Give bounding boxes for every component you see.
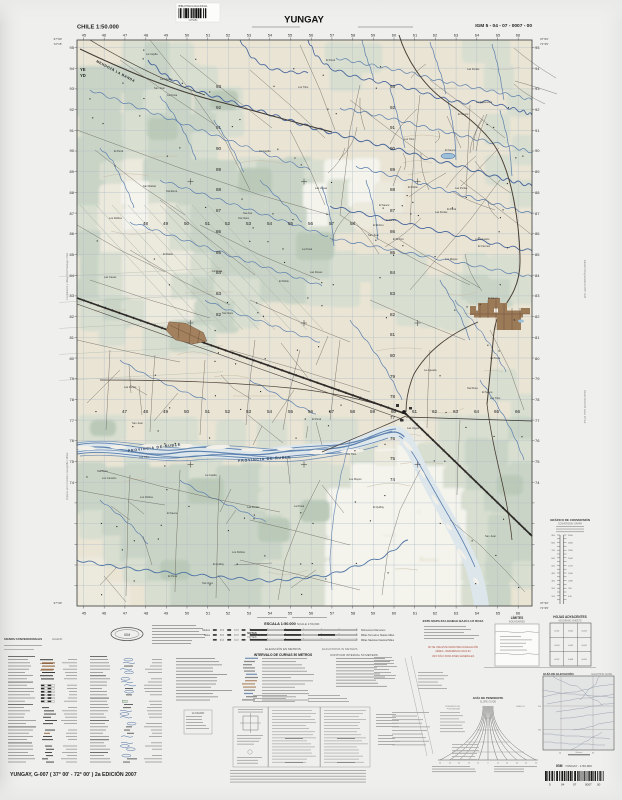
svg-text:La Posta: La Posta bbox=[212, 269, 223, 273]
svg-text:80: 80 bbox=[70, 356, 75, 361]
svg-text:YUNGAY: YUNGAY bbox=[284, 15, 324, 26]
svg-text:92: 92 bbox=[70, 107, 75, 112]
svg-text:83: 83 bbox=[535, 293, 540, 298]
svg-text:52: 52 bbox=[226, 611, 231, 616]
svg-text:52: 52 bbox=[225, 221, 231, 226]
svg-text:90: 90 bbox=[216, 146, 222, 151]
svg-text:IGM: IGM bbox=[556, 764, 563, 768]
svg-text:Los Tilos: Los Tilos bbox=[490, 396, 501, 400]
svg-text:IGM 5 - 04 - 07 - 0007 - 00: IGM 5 - 04 - 07 - 0007 - 00 bbox=[475, 23, 532, 29]
svg-text:57: 57 bbox=[330, 33, 335, 38]
svg-text:CONVERSION GRAPH: CONVERSION GRAPH bbox=[558, 523, 583, 526]
svg-text:83: 83 bbox=[390, 291, 396, 296]
svg-text:La Capilla: La Capilla bbox=[205, 473, 217, 477]
svg-text:GRADOS: GRADOS bbox=[516, 705, 525, 708]
svg-text:IGM: IGM bbox=[124, 633, 131, 637]
svg-text:58: 58 bbox=[350, 221, 356, 226]
svg-text:85: 85 bbox=[390, 250, 396, 255]
svg-text:Los Robles: Los Robles bbox=[109, 216, 123, 220]
svg-text:94: 94 bbox=[535, 66, 540, 71]
svg-text:51: 51 bbox=[206, 33, 211, 38]
svg-text:La Posta: La Posta bbox=[490, 356, 501, 360]
svg-text:40: 40 bbox=[449, 763, 451, 765]
svg-text:86: 86 bbox=[216, 229, 222, 234]
svg-text:78: 78 bbox=[390, 394, 396, 399]
svg-text:54: 54 bbox=[268, 611, 273, 616]
svg-text:92: 92 bbox=[535, 107, 540, 112]
svg-text:El Sauce: El Sauce bbox=[445, 148, 456, 152]
svg-text:Metros: Metros bbox=[202, 629, 210, 632]
svg-text:50: 50 bbox=[185, 611, 190, 616]
svg-text:53: 53 bbox=[247, 611, 252, 616]
svg-text:62: 62 bbox=[432, 409, 438, 414]
svg-text:86: 86 bbox=[70, 231, 75, 236]
svg-text:59: 59 bbox=[371, 33, 376, 38]
svg-text:82: 82 bbox=[390, 312, 396, 317]
svg-text:La Esperanza: La Esperanza bbox=[476, 100, 493, 104]
svg-text:50: 50 bbox=[185, 33, 190, 38]
svg-text:59: 59 bbox=[370, 409, 376, 414]
svg-text:LEGEND: LEGEND bbox=[52, 638, 62, 641]
svg-text:79: 79 bbox=[535, 376, 540, 381]
svg-text:62: 62 bbox=[433, 33, 438, 38]
svg-text:76: 76 bbox=[535, 438, 540, 443]
svg-text:G-009: G-009 bbox=[582, 659, 587, 661]
svg-text:ELEVATIONS IN METERS: ELEVATIONS IN METERS bbox=[322, 647, 358, 651]
svg-text:GLOSARIO: GLOSARIO bbox=[192, 712, 205, 715]
svg-text:63: 63 bbox=[454, 611, 459, 616]
svg-text:Los Mayos: Los Mayos bbox=[349, 477, 362, 481]
svg-text:81: 81 bbox=[535, 335, 540, 340]
svg-text:San Juan: San Juan bbox=[154, 86, 166, 90]
svg-text:79: 79 bbox=[390, 374, 396, 379]
svg-text:74: 74 bbox=[535, 480, 540, 485]
svg-text:55: 55 bbox=[288, 221, 294, 226]
svg-text:Los Robles: Los Robles bbox=[140, 495, 154, 499]
svg-text:Las Perlas: Las Perlas bbox=[124, 385, 137, 389]
svg-text:Metros: Metros bbox=[576, 751, 584, 754]
svg-text:45: 45 bbox=[82, 611, 87, 616]
svg-text:El Carmen: El Carmen bbox=[478, 244, 491, 248]
svg-text:NO SE USE ESTE MAPA PARA NAVEG: NO SE USE ESTE MAPA PARA NAVEGACIÓN bbox=[428, 646, 479, 649]
svg-text:49: 49 bbox=[163, 409, 169, 414]
svg-text:76: 76 bbox=[70, 438, 75, 443]
svg-text:93: 93 bbox=[216, 84, 222, 89]
svg-text:86: 86 bbox=[390, 229, 396, 234]
svg-text:GUÍA DE ELEVACIÓN: GUÍA DE ELEVACIÓN bbox=[543, 671, 574, 676]
svg-text:89: 89 bbox=[70, 169, 75, 174]
svg-text:37°00': 37°00' bbox=[540, 37, 549, 41]
svg-text:ELEVACIÓN EN METROS: ELEVACIÓN EN METROS bbox=[265, 646, 301, 651]
svg-text:G-005: G-005 bbox=[568, 645, 573, 647]
svg-text:93: 93 bbox=[390, 84, 396, 89]
svg-text:YD: YD bbox=[80, 73, 86, 78]
svg-text:83: 83 bbox=[216, 291, 222, 296]
svg-text:54: 54 bbox=[267, 409, 273, 414]
svg-text:El Roble: El Roble bbox=[408, 185, 418, 189]
svg-text:50: 50 bbox=[535, 763, 537, 765]
svg-text:84: 84 bbox=[535, 273, 540, 278]
svg-text:74: 74 bbox=[70, 480, 75, 485]
svg-text:Los Tilos: Los Tilos bbox=[139, 455, 150, 459]
svg-text:63: 63 bbox=[453, 409, 459, 414]
svg-text:61: 61 bbox=[412, 409, 418, 414]
svg-text:58: 58 bbox=[351, 33, 356, 38]
svg-text:61: 61 bbox=[413, 33, 418, 38]
svg-text:AÉREA - REFERENCIA WGS-84: AÉREA - REFERENCIA WGS-84 bbox=[435, 650, 471, 653]
svg-text:87: 87 bbox=[535, 211, 540, 216]
svg-text:88: 88 bbox=[390, 187, 396, 192]
svg-text:La Capilla: La Capilla bbox=[259, 149, 271, 153]
svg-text:77: 77 bbox=[390, 415, 396, 420]
svg-text:64: 64 bbox=[475, 33, 480, 38]
svg-text:37°30': 37°30' bbox=[54, 601, 63, 605]
svg-text:65: 65 bbox=[496, 611, 501, 616]
svg-text:El Peral: El Peral bbox=[447, 207, 457, 211]
svg-text:88: 88 bbox=[70, 190, 75, 195]
svg-text:La Posta: La Posta bbox=[167, 93, 178, 97]
svg-text:Las Perlas: Las Perlas bbox=[247, 505, 260, 509]
svg-text:El Roble: El Roble bbox=[279, 279, 289, 283]
svg-text:89: 89 bbox=[535, 169, 540, 174]
svg-text:52: 52 bbox=[226, 33, 231, 38]
svg-text:Los Canelos: Los Canelos bbox=[475, 237, 490, 241]
svg-text:66: 66 bbox=[516, 33, 521, 38]
svg-text:85: 85 bbox=[70, 252, 75, 257]
svg-text:54: 54 bbox=[267, 221, 273, 226]
svg-text:Las Vegas: Las Vegas bbox=[407, 426, 420, 430]
svg-text:56: 56 bbox=[309, 33, 314, 38]
svg-text:Las Casas: Las Casas bbox=[104, 275, 117, 279]
svg-text:82: 82 bbox=[70, 314, 75, 319]
svg-text:79: 79 bbox=[70, 376, 75, 381]
svg-text:76: 76 bbox=[390, 436, 396, 441]
svg-text:20: 20 bbox=[468, 763, 470, 765]
svg-text:47: 47 bbox=[123, 611, 128, 616]
svg-text:G-001: G-001 bbox=[554, 631, 559, 633]
svg-text:SCALE 1:50,000: SCALE 1:50,000 bbox=[297, 622, 320, 626]
svg-text:84: 84 bbox=[390, 270, 396, 275]
svg-text:49: 49 bbox=[164, 33, 169, 38]
svg-text:El Roble: El Roble bbox=[163, 252, 173, 256]
svg-text:San Juan: San Juan bbox=[132, 421, 144, 425]
svg-text:YUNGAY - 1:50.000: YUNGAY - 1:50.000 bbox=[565, 764, 592, 768]
svg-text:Los Mayos: Los Mayos bbox=[445, 257, 458, 261]
svg-text:YUNGAY, G-007 ( 37° 00' - 72°: YUNGAY, G-007 ( 37° 00' - 72° 00' ) 2a E… bbox=[10, 770, 137, 778]
svg-text:50: 50 bbox=[184, 221, 190, 226]
svg-text:El Peral: El Peral bbox=[168, 574, 178, 578]
svg-text:0: 0 bbox=[488, 763, 489, 765]
svg-text:75: 75 bbox=[535, 459, 540, 464]
svg-text:95: 95 bbox=[70, 45, 75, 50]
svg-text:ESCALA 1:50.000: ESCALA 1:50.000 bbox=[264, 622, 296, 626]
svg-text:55: 55 bbox=[288, 611, 293, 616]
svg-text:Compilación y dibujo IGM Santi: Compilación y dibujo IGM Santiago Chile bbox=[65, 252, 69, 300]
svg-text:La Capilla: La Capilla bbox=[146, 52, 158, 56]
svg-text:85: 85 bbox=[535, 252, 540, 257]
svg-text:47: 47 bbox=[122, 409, 128, 414]
svg-text:1720: 1720 bbox=[568, 565, 574, 567]
svg-text:47: 47 bbox=[123, 33, 128, 38]
svg-text:45: 45 bbox=[82, 33, 87, 38]
svg-text:Datum WGS-84 Huso 18 Sur: Datum WGS-84 Huso 18 Sur bbox=[583, 390, 587, 424]
svg-text:49: 49 bbox=[163, 221, 169, 226]
svg-text:81: 81 bbox=[390, 332, 396, 337]
svg-text:87: 87 bbox=[216, 208, 222, 213]
svg-text:El Sauce: El Sauce bbox=[482, 390, 493, 394]
svg-text:Sta Ana: Sta Ana bbox=[243, 211, 253, 215]
svg-text:77: 77 bbox=[535, 418, 540, 423]
svg-text:94: 94 bbox=[70, 66, 75, 71]
svg-text:81: 81 bbox=[70, 335, 75, 340]
svg-text:Sta Clara: Sta Clara bbox=[202, 581, 213, 585]
svg-text:51: 51 bbox=[205, 409, 211, 414]
svg-text:00: 00 bbox=[597, 783, 601, 787]
svg-text:Miles: Miles bbox=[204, 634, 211, 637]
svg-text:CONTOUR INTERVAL 50 METERS: CONTOUR INTERVAL 50 METERS bbox=[330, 653, 378, 657]
svg-text:58: 58 bbox=[351, 611, 356, 616]
svg-text:63: 63 bbox=[454, 33, 459, 38]
svg-text:El Peral: El Peral bbox=[326, 58, 336, 62]
svg-text:59: 59 bbox=[371, 611, 376, 616]
svg-text:LÍMITES: LÍMITES bbox=[511, 615, 524, 620]
svg-text:Kilómetros Kilometers: Kilómetros Kilometers bbox=[361, 629, 386, 632]
svg-text:Los Tilos: Los Tilos bbox=[346, 452, 357, 456]
svg-text:62: 62 bbox=[433, 611, 438, 616]
svg-text:El Quillay: El Quillay bbox=[373, 505, 385, 509]
svg-text:G-008: G-008 bbox=[568, 659, 573, 661]
svg-text:50: 50 bbox=[439, 763, 441, 765]
svg-text:37°00': 37°00' bbox=[54, 37, 63, 41]
svg-text:46: 46 bbox=[102, 611, 107, 616]
svg-text:10: 10 bbox=[477, 763, 479, 765]
svg-text:El Sauce: El Sauce bbox=[458, 112, 469, 116]
svg-text:Las Perlas: Las Perlas bbox=[435, 210, 448, 214]
svg-text:San Juan: San Juan bbox=[368, 233, 380, 237]
svg-text:INTERVALO DE CURVAS 50 METROS: INTERVALO DE CURVAS 50 METROS bbox=[254, 653, 313, 657]
svg-text:Los Tilos: Los Tilos bbox=[298, 85, 309, 89]
svg-text:PORCENTAJE: PORCENTAJE bbox=[447, 708, 461, 711]
svg-text:93: 93 bbox=[70, 86, 75, 91]
svg-text:91: 91 bbox=[535, 128, 540, 133]
svg-text:65: 65 bbox=[496, 33, 501, 38]
svg-text:78: 78 bbox=[70, 397, 75, 402]
svg-text:Los Tilos: Los Tilos bbox=[404, 137, 415, 141]
svg-text:El Sauce: El Sauce bbox=[167, 511, 178, 515]
svg-text:La Aguada: La Aguada bbox=[424, 368, 437, 372]
svg-text:55: 55 bbox=[288, 409, 294, 414]
svg-text:54: 54 bbox=[268, 33, 273, 38]
svg-text:53: 53 bbox=[246, 221, 252, 226]
svg-text:20: 20 bbox=[506, 763, 508, 765]
svg-text:Las Perlas: Las Perlas bbox=[467, 67, 480, 71]
svg-text:57: 57 bbox=[330, 611, 335, 616]
svg-text:2360: 2360 bbox=[568, 550, 574, 552]
svg-text:07: 07 bbox=[573, 783, 577, 787]
svg-text:48: 48 bbox=[143, 221, 149, 226]
svg-text:Impreso por el Instituto Geogr: Impreso por el Instituto Geográfico Mili… bbox=[65, 452, 69, 500]
svg-text:40: 40 bbox=[525, 763, 527, 765]
svg-text:BIBLIOTECA NACIONAL: BIBLIOTECA NACIONAL bbox=[178, 4, 208, 8]
svg-text:La Aguada: La Aguada bbox=[160, 77, 173, 81]
svg-text:74: 74 bbox=[390, 477, 396, 482]
svg-text:La Posta: La Posta bbox=[302, 247, 313, 251]
svg-text:85: 85 bbox=[216, 250, 222, 255]
svg-text:92: 92 bbox=[390, 105, 396, 110]
svg-text:HOJAS ADYACENTES: HOJAS ADYACENTES bbox=[553, 615, 586, 619]
svg-text:55: 55 bbox=[288, 33, 293, 38]
svg-text:GUÍA DE PENDIENTE: GUÍA DE PENDIENTE bbox=[473, 695, 503, 700]
svg-text:90: 90 bbox=[390, 146, 396, 151]
svg-text:48: 48 bbox=[143, 409, 149, 414]
svg-text:San Juan: San Juan bbox=[485, 534, 497, 538]
svg-text:3000: 3000 bbox=[568, 535, 574, 537]
svg-text:SIGNOS CONVENCIONALES: SIGNOS CONVENCIONALES bbox=[4, 637, 42, 641]
svg-text:ELEVATION GUIDE: ELEVATION GUIDE bbox=[592, 673, 613, 676]
svg-text:83: 83 bbox=[70, 293, 75, 298]
svg-text:64: 64 bbox=[475, 611, 480, 616]
svg-text:G-004: G-004 bbox=[554, 645, 559, 647]
svg-text:ESTE MAPA ES LEGIBLE BAJO LUZ: ESTE MAPA ES LEGIBLE BAJO LUZ ROJA bbox=[423, 619, 485, 623]
svg-text:Los Canelos: Los Canelos bbox=[102, 476, 117, 480]
svg-text:El Molino: El Molino bbox=[393, 237, 404, 241]
svg-text:77: 77 bbox=[70, 418, 75, 423]
svg-text:2040: 2040 bbox=[568, 558, 574, 560]
svg-text:Los Robles: Los Robles bbox=[232, 550, 246, 554]
svg-text:88: 88 bbox=[535, 190, 540, 195]
svg-text:53: 53 bbox=[247, 33, 252, 38]
svg-text:YE: YE bbox=[80, 67, 86, 72]
svg-text:86: 86 bbox=[535, 231, 540, 236]
svg-text:91: 91 bbox=[70, 128, 75, 133]
svg-text:1400: 1400 bbox=[568, 573, 574, 575]
svg-text:Sta Rosa: Sta Rosa bbox=[467, 386, 478, 390]
svg-text:G-006: G-006 bbox=[582, 645, 587, 647]
svg-text:72°15': 72°15' bbox=[54, 42, 63, 46]
svg-text:El Peral: El Peral bbox=[312, 417, 322, 421]
svg-text:90: 90 bbox=[535, 148, 540, 153]
svg-text:ADJOINING SHEETS: ADJOINING SHEETS bbox=[558, 620, 582, 623]
svg-text:G-002: G-002 bbox=[568, 631, 573, 633]
svg-text:56: 56 bbox=[309, 611, 314, 616]
svg-text:El Sauce: El Sauce bbox=[386, 218, 397, 222]
svg-text:58: 58 bbox=[350, 409, 356, 414]
svg-text:37°30': 37°30' bbox=[540, 601, 549, 605]
svg-text:71°45': 71°45' bbox=[540, 42, 549, 46]
svg-text:60: 60 bbox=[392, 33, 397, 38]
svg-text:BOUNDARIES: BOUNDARIES bbox=[509, 621, 525, 624]
svg-text:G-003: G-003 bbox=[582, 631, 587, 633]
svg-text:64: 64 bbox=[474, 409, 480, 414]
svg-text:El Sauce: El Sauce bbox=[379, 203, 390, 207]
svg-text:82: 82 bbox=[535, 314, 540, 319]
svg-text:60: 60 bbox=[391, 409, 397, 414]
svg-text:2680: 2680 bbox=[568, 543, 574, 545]
svg-text:El Quillay: El Quillay bbox=[213, 562, 225, 566]
svg-text:88: 88 bbox=[216, 187, 222, 192]
svg-text:Las Vegas: Las Vegas bbox=[315, 186, 328, 190]
svg-text:10: 10 bbox=[497, 763, 499, 765]
svg-text:89: 89 bbox=[216, 167, 222, 172]
svg-text:56: 56 bbox=[308, 221, 314, 226]
svg-text:30: 30 bbox=[516, 763, 518, 765]
svg-text:48: 48 bbox=[144, 33, 149, 38]
svg-text:87: 87 bbox=[390, 208, 396, 213]
svg-text:75: 75 bbox=[70, 459, 75, 464]
svg-text:87: 87 bbox=[70, 211, 75, 216]
svg-text:75: 75 bbox=[390, 456, 396, 461]
svg-text:1175451: 1175451 bbox=[188, 19, 198, 22]
svg-text:SLOPE GUIDE: SLOPE GUIDE bbox=[480, 701, 497, 704]
svg-text:Sta Clara: Sta Clara bbox=[222, 311, 233, 315]
svg-text:G-007: G-007 bbox=[554, 659, 559, 661]
svg-text:78: 78 bbox=[535, 397, 540, 402]
svg-text:51: 51 bbox=[205, 221, 211, 226]
svg-text:04: 04 bbox=[561, 783, 565, 787]
svg-text:Las Perlas: Las Perlas bbox=[455, 186, 468, 190]
svg-text:65: 65 bbox=[494, 409, 500, 414]
svg-text:0007: 0007 bbox=[585, 783, 592, 787]
svg-text:51: 51 bbox=[206, 611, 211, 616]
svg-text:56: 56 bbox=[308, 409, 314, 414]
svg-text:49: 49 bbox=[164, 611, 169, 616]
svg-text:66: 66 bbox=[516, 611, 521, 616]
svg-text:53: 53 bbox=[246, 409, 252, 414]
svg-text:84: 84 bbox=[70, 273, 75, 278]
svg-text:Millas Terrestres Statute Mi: Millas Terrestres Statute Miles bbox=[361, 634, 395, 637]
svg-text:90: 90 bbox=[70, 148, 75, 153]
svg-text:USO SÓLO PARA FINES GENERALES: USO SÓLO PARA FINES GENERALES bbox=[432, 655, 475, 658]
svg-text:Las Rosas: Las Rosas bbox=[310, 270, 323, 274]
svg-text:El Sauce: El Sauce bbox=[488, 296, 499, 300]
svg-text:93: 93 bbox=[535, 86, 540, 91]
svg-text:CHILE 1:50.000: CHILE 1:50.000 bbox=[77, 25, 119, 31]
svg-text:82: 82 bbox=[216, 312, 222, 317]
svg-text:Sta Elena: Sta Elena bbox=[166, 189, 178, 193]
svg-text:46: 46 bbox=[102, 33, 107, 38]
svg-text:91: 91 bbox=[390, 125, 396, 130]
svg-text:57: 57 bbox=[329, 221, 335, 226]
svg-text:89: 89 bbox=[390, 167, 396, 172]
svg-text:30: 30 bbox=[458, 763, 460, 765]
svg-text:Sta Clara: Sta Clara bbox=[238, 216, 249, 220]
svg-text:66: 66 bbox=[515, 409, 521, 414]
svg-text:80: 80 bbox=[390, 353, 396, 358]
svg-text:80: 80 bbox=[535, 356, 540, 361]
svg-text:Sta Rosa: Sta Rosa bbox=[97, 469, 108, 473]
svg-text:El Molino: El Molino bbox=[373, 223, 384, 227]
svg-text:Millas Náuticas Nautical Mil: Millas Náuticas Nautical Miles bbox=[361, 639, 395, 642]
svg-text:1080: 1080 bbox=[568, 581, 574, 583]
svg-text:Edición fotogramétrica 2007 IG: Edición fotogramétrica 2007 IGM bbox=[583, 260, 587, 298]
svg-text:71°45': 71°45' bbox=[540, 606, 549, 610]
svg-text:91: 91 bbox=[216, 125, 222, 130]
svg-text:61: 61 bbox=[413, 611, 418, 616]
svg-text:GRÁFICO DE CONVERSIÓN: GRÁFICO DE CONVERSIÓN bbox=[550, 517, 590, 522]
svg-text:60: 60 bbox=[392, 611, 397, 616]
svg-text:50: 50 bbox=[184, 409, 190, 414]
svg-text:92: 92 bbox=[216, 105, 222, 110]
svg-text:52: 52 bbox=[225, 409, 231, 414]
svg-text:48: 48 bbox=[144, 611, 149, 616]
svg-text:San Rafael: San Rafael bbox=[143, 184, 156, 188]
svg-text:La Posta: La Posta bbox=[294, 504, 305, 508]
svg-text:El Peral: El Peral bbox=[114, 149, 124, 153]
